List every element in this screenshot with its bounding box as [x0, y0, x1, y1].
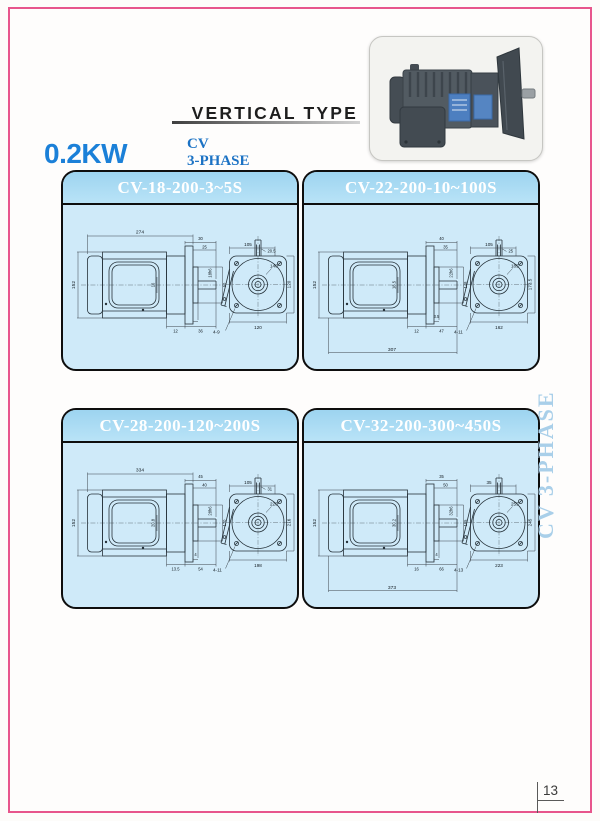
gearmotor-photo-illustration [370, 37, 542, 160]
dim-mid: 20.8 [151, 518, 156, 527]
dim-flange-depth: 45 [198, 474, 203, 479]
spec-panel-cv28: CV-28-200-120~200S 334 45 40 152 20.8 28… [61, 408, 299, 609]
vertical-series-label: CV 3-PHASE [533, 362, 569, 568]
dim-spigot-diameter: 185 [511, 264, 519, 269]
side-view-dimension-lines [318, 241, 464, 354]
dim-shaft-diameter: 32h6 [449, 506, 454, 516]
dim-shaft-diameter: 28h6 [208, 506, 213, 516]
dim-spigot-diameter: 220 [270, 502, 278, 507]
series-line2: 3-PHASE [187, 153, 250, 170]
dimension-drawing-cv28: 334 45 40 152 20.8 28h6 170 4 13.5 54 10… [63, 443, 297, 606]
dim-flange-width: 120 [254, 325, 262, 330]
dim-mid: 18.5 [392, 280, 397, 289]
dim-bottom-1: 12 [414, 328, 419, 333]
dim-key: 31 [268, 487, 273, 492]
dim-shaft-length: 40 [202, 482, 207, 487]
dim-body-height: 152 [71, 519, 77, 527]
series-label: CV 3-PHASE [187, 136, 250, 170]
dim-bottom-2: 66 [439, 566, 444, 571]
dim-bottom-2: 54 [198, 566, 203, 571]
dim-mid: 16 [151, 282, 156, 287]
panel-title: CV-32-200-300~450S [304, 410, 538, 443]
series-line1: CV [187, 136, 250, 153]
dim-boss: 3.5 [434, 314, 440, 319]
title-underline [172, 121, 360, 124]
dim-flange-depth: 30 [198, 236, 203, 241]
dim-overall-length: 274 [136, 229, 144, 235]
spec-panel-cv32: CV-32-200-300~450S 373 35 50 152 30.2 32… [302, 408, 540, 609]
dim-overall-length: 334 [136, 467, 144, 473]
spec-panel-cv22: CV-22-200-10~100S 307 40 35 152 18.5 22h… [302, 170, 540, 371]
dim-key: 25 [509, 249, 514, 254]
spec-panel-cv18: CV-18-200-3~5S 274 30 25 152 16 18h6 50 … [61, 170, 299, 371]
dim-flange-height: 120 [287, 280, 292, 288]
side-view-dim-labels: 307 40 35 152 18.5 22h6 148 3.5 12 47 [312, 236, 468, 353]
dim-flange-top: 35 [486, 480, 492, 485]
dim-flange-width: 198 [254, 563, 262, 568]
power-rating-label: 0.2KW [44, 138, 127, 170]
dim-mid: 30.2 [392, 518, 397, 527]
dim-flange-top: 105 [244, 480, 252, 485]
dimension-drawing-cv18: 274 30 25 152 16 18h6 50 12 36 105 20.5 … [63, 205, 297, 368]
dim-spigot-diameter: 255 [511, 502, 519, 507]
front-view-outline [221, 478, 287, 551]
dim-bolt-holes: 4-11 [213, 568, 222, 573]
dim-flange-height: 216 [287, 518, 292, 526]
dim-shaft-diameter: 18h6 [208, 268, 213, 278]
panel-title: CV-18-200-3~5S [63, 172, 297, 205]
page-number-block: 13 [537, 782, 578, 813]
dim-bolt-holes: 4-11 [454, 330, 463, 335]
dim-flange-height: 173.5 [528, 278, 533, 290]
dimension-drawing-cv32: 373 35 50 152 30.2 32h6 185 4 16 66 35 2… [304, 443, 538, 606]
dim-bottom-2: 47 [439, 328, 444, 333]
dim-bottom-1: 12 [173, 328, 178, 333]
dim-flange-top: 105 [244, 242, 252, 247]
panel-title: CV-28-200-120~200S [63, 410, 297, 443]
dim-overall-length: 373 [388, 585, 396, 591]
dim-shaft-length: 50 [443, 482, 448, 487]
page-number: 13 [538, 782, 578, 798]
dim-shaft-diameter: 22h6 [449, 268, 454, 278]
dim-flange-height: 245 [528, 518, 533, 526]
dim-body-height: 152 [312, 281, 318, 289]
dim-flange-width: 162 [495, 325, 503, 330]
dim-overall-length: 307 [388, 347, 396, 353]
dim-bolt-holes: 4-13 [454, 568, 464, 573]
dim-flange-depth: 40 [439, 236, 444, 241]
dim-boss: 4 [194, 552, 197, 557]
page-number-rule [537, 800, 564, 801]
product-photo-card [369, 36, 543, 161]
dim-bottom-2: 36 [198, 328, 203, 333]
side-view-dimension-lines [77, 235, 223, 329]
dim-body-height: 152 [312, 519, 318, 527]
panel-title: CV-22-200-10~100S [304, 172, 538, 205]
dim-shaft-length: 35 [443, 244, 448, 249]
dim-shaft-length: 25 [202, 244, 207, 249]
front-view-outline [462, 240, 528, 313]
dim-key: 20.5 [268, 249, 277, 254]
dim-flange-top: 105 [485, 242, 493, 247]
dimension-drawing-cv22: 307 40 35 152 18.5 22h6 148 3.5 12 47 10… [304, 205, 538, 368]
dim-bottom-1: 16 [414, 566, 419, 571]
dim-flange-width: 223 [495, 563, 503, 568]
dim-body-height: 152 [71, 281, 77, 289]
dim-boss: 4 [435, 552, 438, 557]
front-view-outline [462, 478, 528, 551]
dim-spigot-diameter: 140 [270, 264, 278, 269]
dim-bolt-holes: 4-9 [213, 330, 220, 335]
side-view-dimension-lines [318, 479, 464, 592]
side-view-dim-labels: 373 35 50 152 30.2 32h6 185 4 16 66 [312, 474, 468, 591]
dim-bottom-1: 13.5 [172, 566, 181, 571]
dim-flange-depth: 35 [439, 474, 444, 479]
front-view-outline [221, 240, 287, 313]
